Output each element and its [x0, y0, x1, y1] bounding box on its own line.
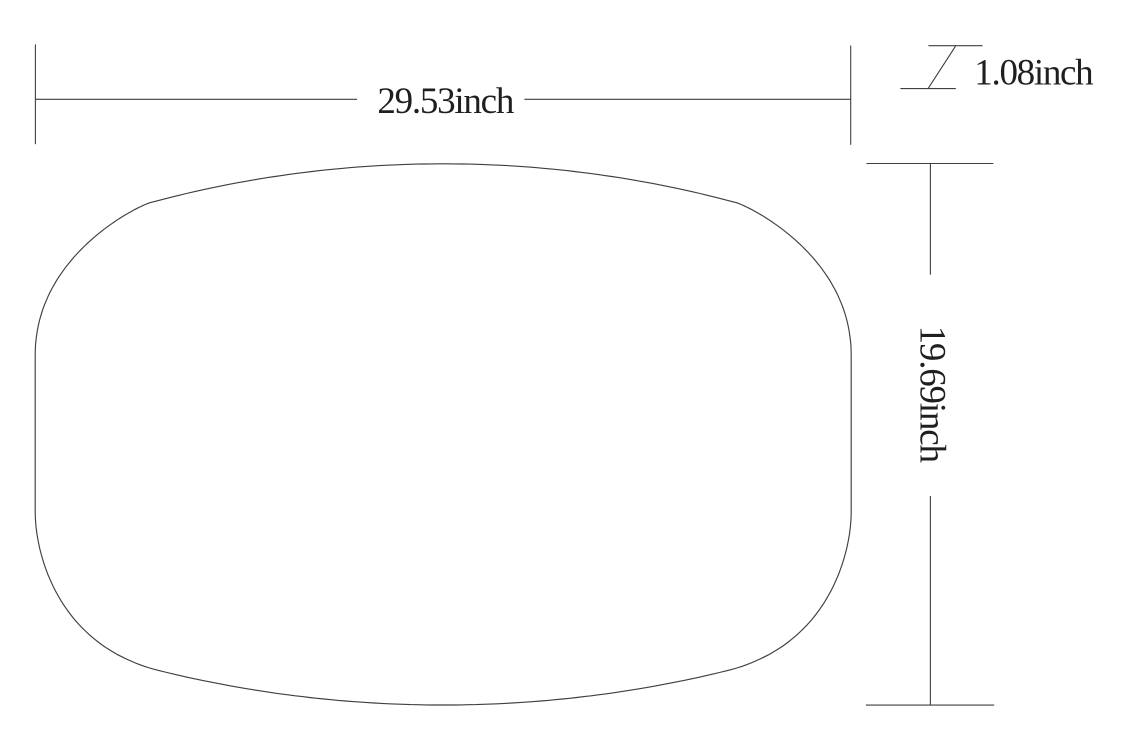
svg-text:19.69inch: 19.69inch [912, 326, 953, 464]
svg-text:1.08inch: 1.08inch [974, 53, 1094, 94]
svg-text:29.53inch: 29.53inch [377, 81, 514, 122]
